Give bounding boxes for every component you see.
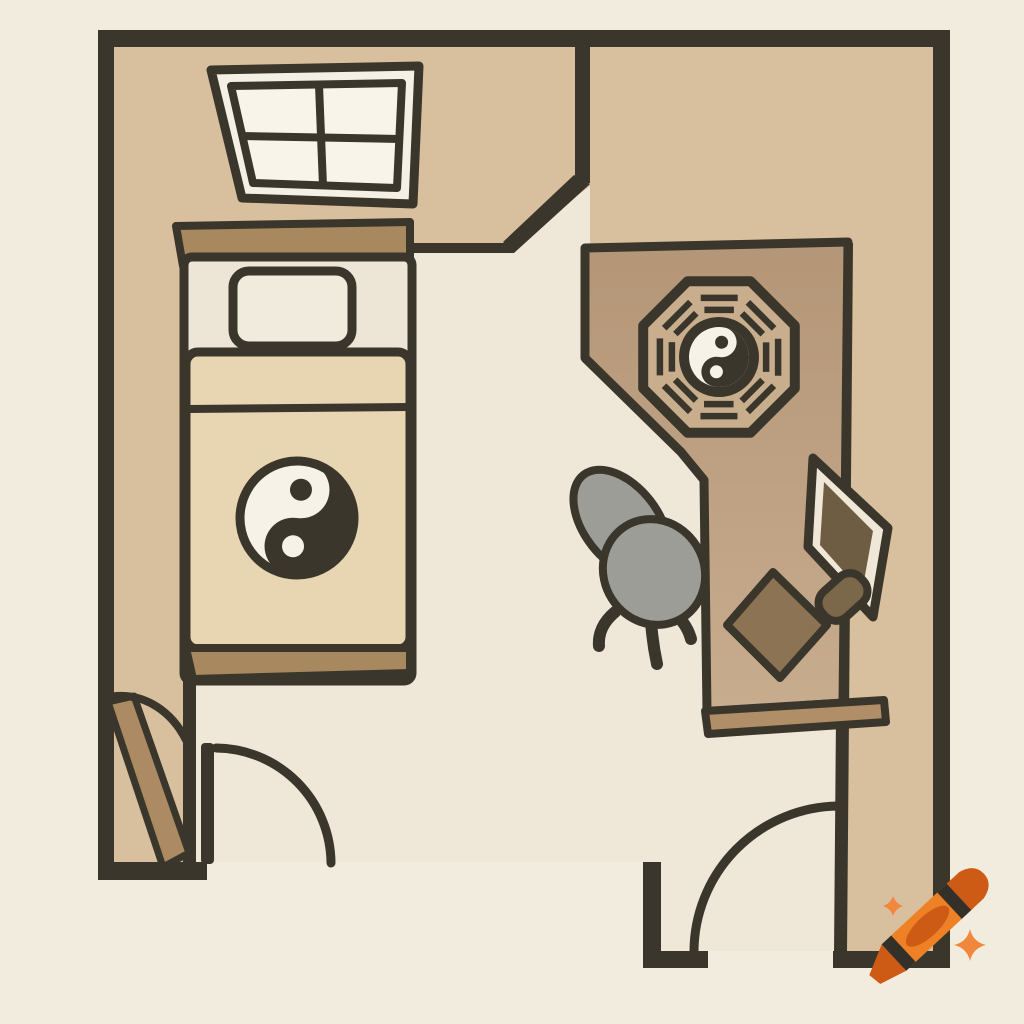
bed — [176, 222, 412, 681]
floor-plan-canvas — [0, 0, 1024, 1024]
wall-step-horizontal — [643, 951, 708, 968]
floor-plan-svg — [0, 0, 1024, 1024]
bagua-symbol — [643, 281, 795, 433]
window — [211, 66, 419, 204]
wall-right — [933, 30, 950, 968]
wall-interior-top — [575, 40, 590, 183]
wall-top — [98, 30, 950, 47]
window-mullion-horizontal — [241, 136, 399, 139]
door-middle-panel — [201, 743, 214, 864]
wall-left — [98, 30, 114, 880]
wall-line-under-alcove — [407, 243, 514, 253]
bed-blanket-fold-line — [188, 407, 409, 409]
bed-footboard — [186, 648, 410, 679]
bed-pillow — [233, 271, 352, 346]
